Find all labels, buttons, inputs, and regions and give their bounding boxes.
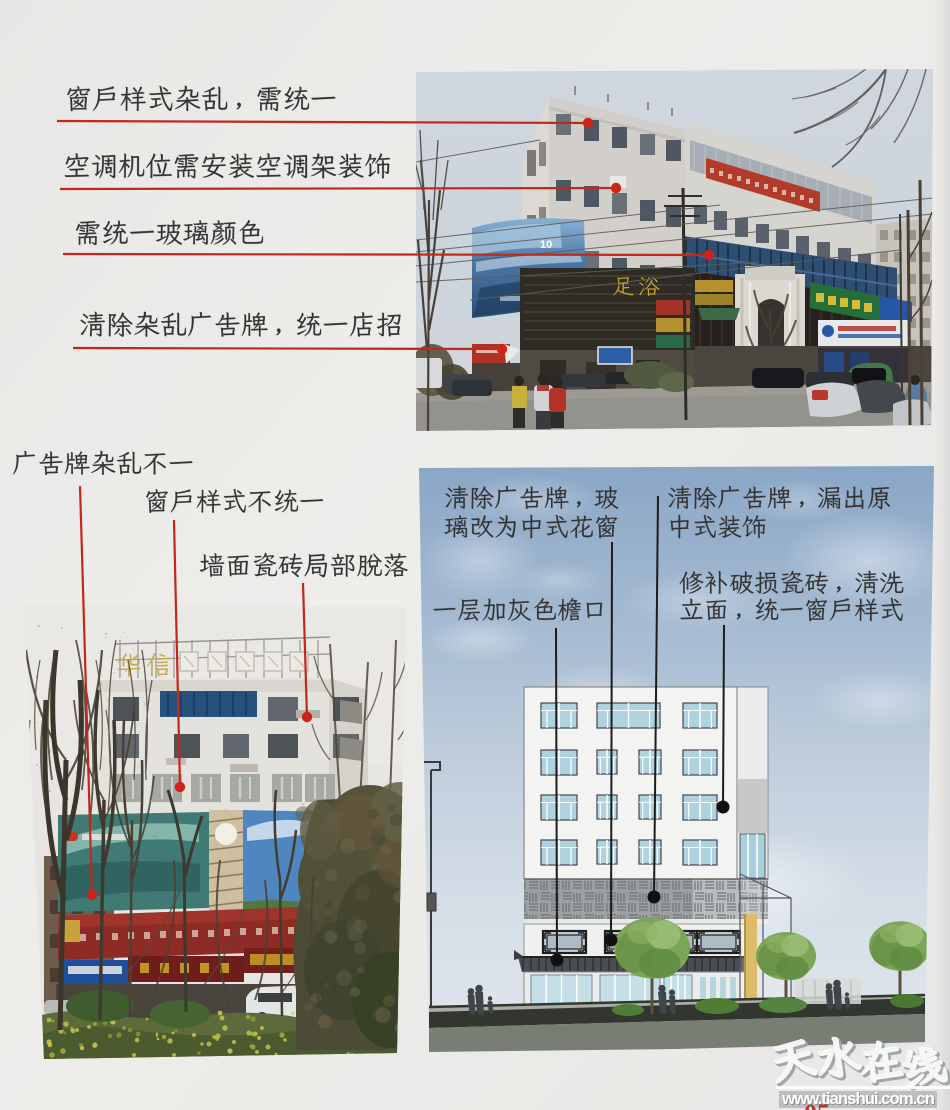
svg-text:10: 10 xyxy=(540,239,552,251)
svg-text:05: 05 xyxy=(804,1099,830,1110)
